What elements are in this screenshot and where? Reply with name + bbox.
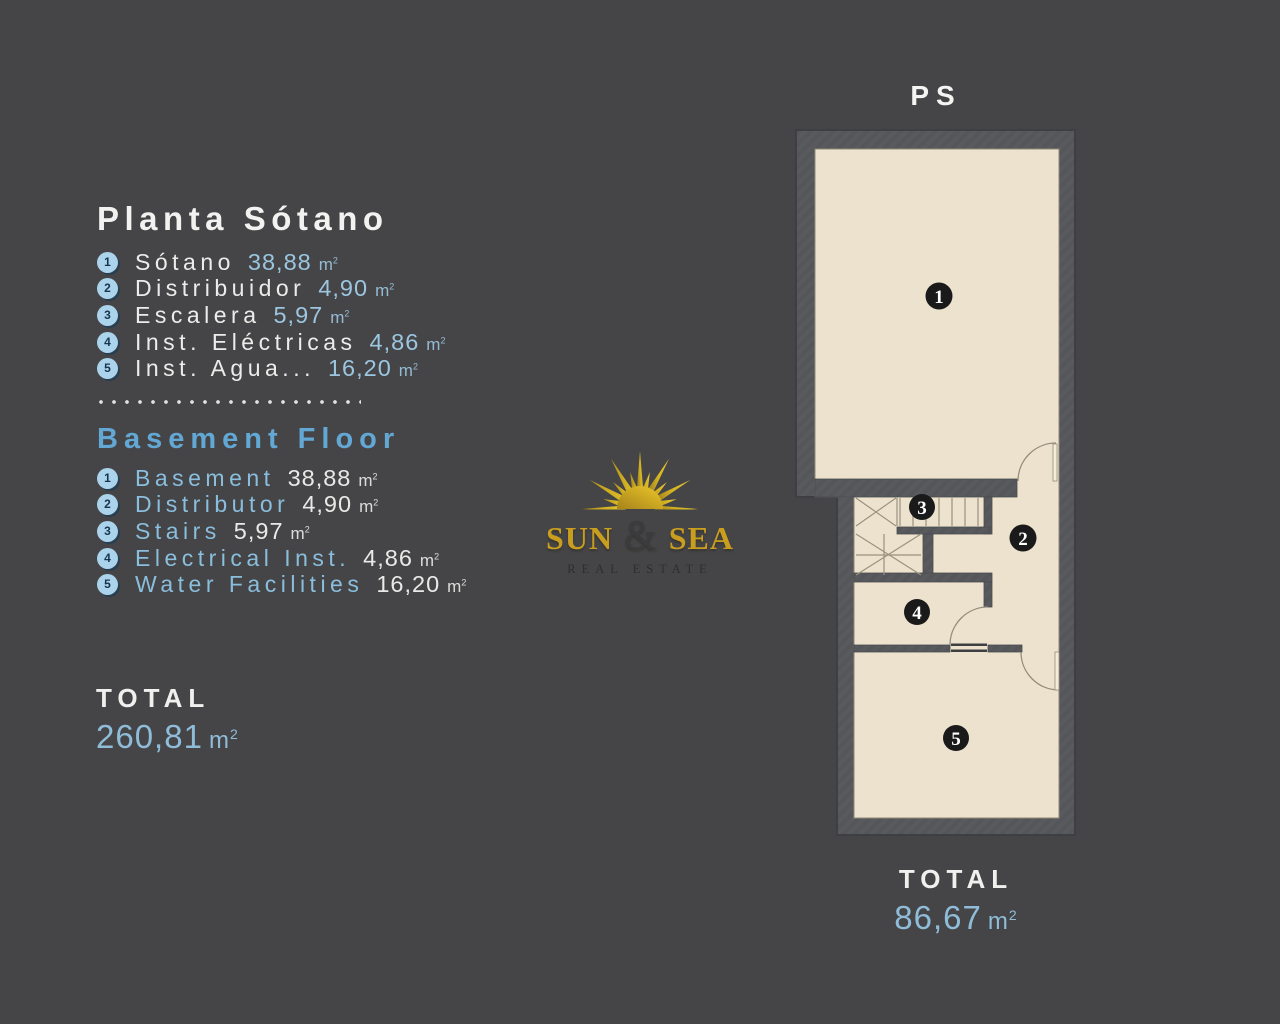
logo-tagline: REAL ESTATE (540, 562, 740, 577)
svg-text:5: 5 (951, 729, 961, 750)
logo-wordmark: SUN & SEA (540, 512, 740, 560)
room-area-value: 16,20m2 (328, 355, 418, 382)
english-room-list: 1 Basement 38,88m2 2 Distributor 4,90m2 … (97, 465, 466, 598)
room-list-item: 4 Electrical Inst. 4,86m2 (97, 545, 466, 572)
separator-dotted (99, 400, 361, 404)
english-title: Basement Floor (97, 423, 400, 456)
total-left: TOTAL 260,81m2 (96, 683, 239, 756)
room-list-item: 2 Distributor 4,90m2 (97, 492, 466, 519)
spanish-title: Planta Sótano (97, 200, 389, 238)
room-label: Escalera (135, 302, 260, 329)
room-label: Water Facilities (135, 571, 363, 598)
room-number-badge: 3 (97, 305, 118, 326)
logo-ampersand: & (622, 513, 660, 559)
room-number-badge: 2 (97, 494, 118, 515)
room-number-badge: 1 (97, 252, 118, 273)
svg-text:2: 2 (1018, 529, 1028, 550)
room-number-badge: 4 (97, 332, 118, 353)
svg-text:1: 1 (934, 287, 944, 308)
room-number-badge: 2 (97, 278, 118, 299)
room-area-value: 4,86m2 (363, 545, 439, 572)
sun-icon (573, 449, 707, 511)
total-value: 260,81m2 (96, 718, 239, 756)
svg-text:3: 3 (917, 498, 927, 519)
room-label: Distributor (135, 491, 289, 518)
room-list-item: 5 Inst. Agua... 16,20m2 (97, 355, 445, 382)
room-area-value: 4,90m2 (302, 491, 378, 518)
room-number-badge: 5 (97, 358, 118, 379)
room-label: Sótano (135, 249, 235, 276)
room-marker: 3 (909, 494, 935, 520)
room-label: Inst. Agua... (135, 355, 315, 382)
room-marker: 4 (904, 599, 930, 625)
room-list-item: 1 Sótano 38,88m2 (97, 249, 445, 276)
plan-title: PS (790, 80, 1082, 112)
floor-plan: 1 2 3 4 5 (790, 126, 1082, 840)
room-area-value: 5,97m2 (273, 302, 349, 329)
room-number-badge: 3 (97, 521, 118, 542)
room-label: Inst. Eléctricas (135, 329, 357, 356)
room-area-value: 5,97m2 (234, 518, 310, 545)
room-number-badge: 4 (97, 548, 118, 569)
room-label: Distribuidor (135, 275, 305, 302)
logo: SUN & SEA REAL ESTATE (540, 449, 740, 577)
total-label: TOTAL (96, 683, 239, 714)
room-label: Electrical Inst. (135, 545, 350, 572)
svg-text:4: 4 (912, 603, 922, 624)
room-list-item: 1 Basement 38,88m2 (97, 465, 466, 492)
room-area-value: 16,20m2 (376, 571, 466, 598)
room-marker: 5 (943, 725, 969, 751)
room-label: Stairs (135, 518, 221, 545)
room-marker: 2 (1010, 525, 1037, 552)
room-number-badge: 1 (97, 468, 118, 489)
room-list-item: 5 Water Facilities 16,20m2 (97, 571, 466, 598)
room-marker: 1 (926, 283, 953, 310)
spanish-room-list: 1 Sótano 38,88m2 2 Distribuidor 4,90m2 3… (97, 249, 445, 382)
room-number-badge: 5 (97, 574, 118, 595)
room-area-value: 4,90m2 (318, 275, 394, 302)
total-label: TOTAL (838, 864, 1074, 895)
room-list-item: 3 Stairs 5,97m2 (97, 518, 466, 545)
room-label: Basement (135, 465, 275, 492)
room-area-value: 4,86m2 (370, 329, 446, 356)
room-list-item: 4 Inst. Eléctricas 4,86m2 (97, 329, 445, 356)
total-value: 86,67m2 (838, 899, 1074, 937)
room-area-value: 38,88m2 (248, 249, 338, 276)
room-area-value: 38,88m2 (288, 465, 378, 492)
total-right: TOTAL 86,67m2 (838, 864, 1074, 937)
room-list-item: 3 Escalera 5,97m2 (97, 302, 445, 329)
room-list-item: 2 Distribuidor 4,90m2 (97, 276, 445, 303)
flyer-canvas: Planta Sótano 1 Sótano 38,88m2 2 Distrib… (0, 0, 1280, 1024)
